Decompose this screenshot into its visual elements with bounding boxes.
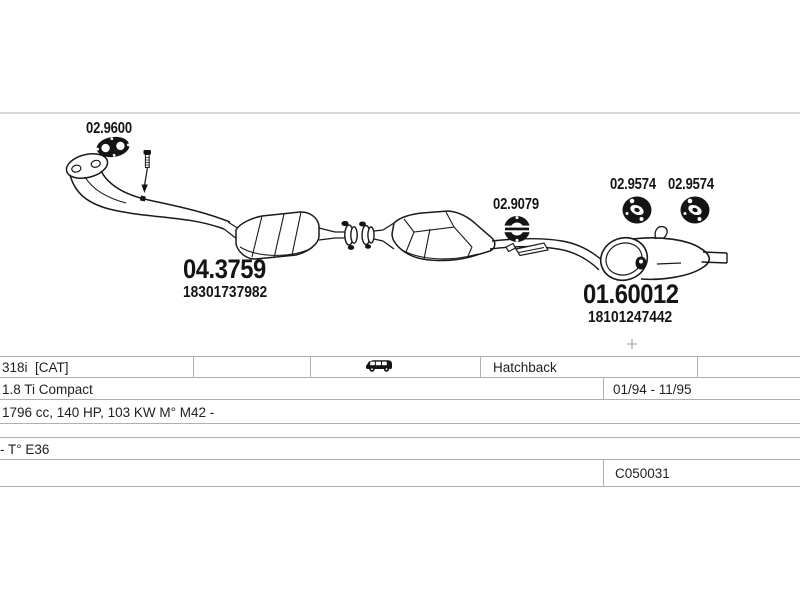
period-cell: 01/94 - 11/95	[613, 382, 692, 398]
exhaust-catalog-page: 02.9600 04.3759 18301737982 02.9079 02.9…	[0, 0, 800, 600]
engine-cell: 1796 cc, 140 HP, 103 KW M° M42 -	[2, 405, 214, 421]
model-cell: 318i [CAT]	[2, 360, 69, 376]
body-type-cell: Hatchback	[493, 360, 557, 376]
version-cell: 1.8 Ti Compact	[2, 382, 93, 398]
catalog-code-cell: C050031	[615, 466, 670, 482]
chassis-cell: - T° E36	[0, 442, 49, 458]
vehicle-table: 318i [CAT] Hatchback 1.8 Ti Compact 01/9…	[0, 0, 800, 600]
car-icon	[364, 357, 394, 373]
